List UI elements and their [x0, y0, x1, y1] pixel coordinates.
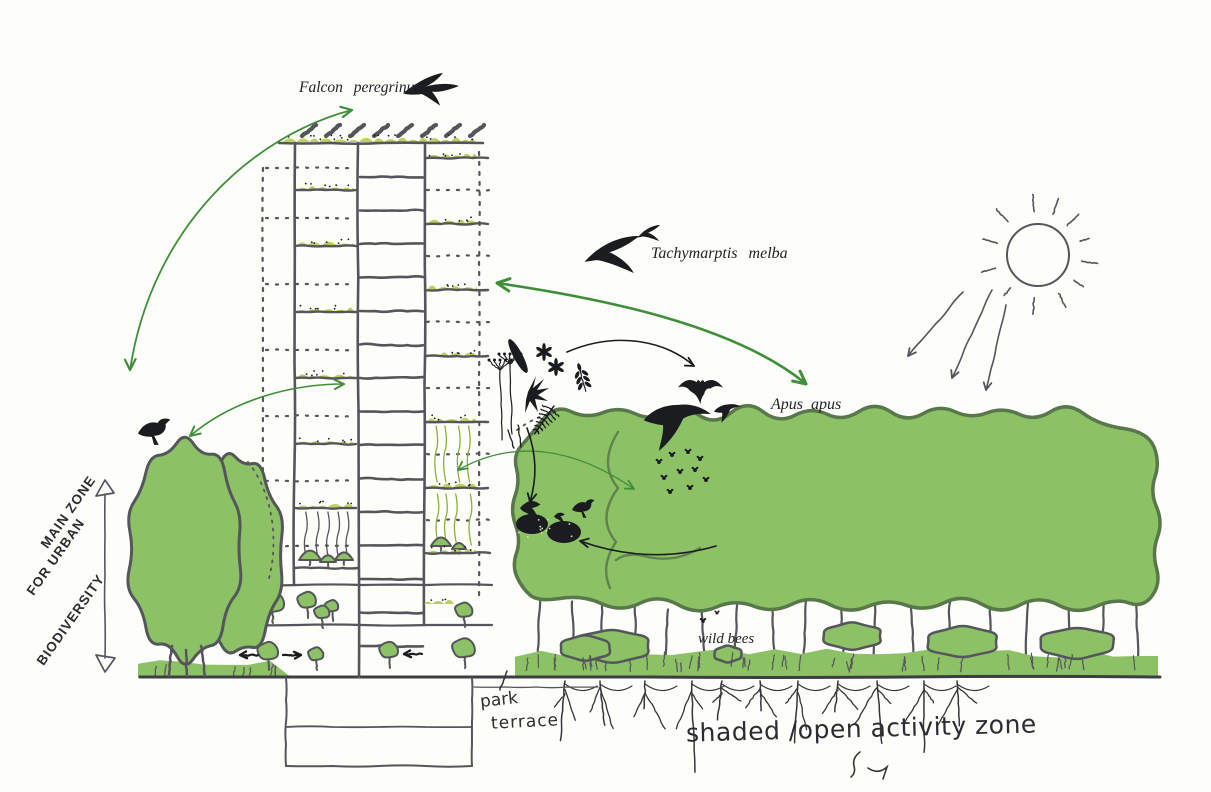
label-falcon-peregrinus: Falcon peregrinus [299, 79, 420, 97]
label-park: park [479, 688, 519, 712]
label-apus-apus: Apus apus [771, 396, 841, 414]
sunlight-arrows-icon [905, 290, 1006, 391]
biodiversity-sketch: Falcon peregrinus Tachymarptis melba Apu… [0, 0, 1211, 792]
label-terrace: terrace [491, 710, 560, 734]
perched-bird-icon [138, 418, 170, 444]
left-tree [128, 437, 283, 676]
bat-icon [678, 380, 723, 404]
sun-icon [982, 195, 1098, 315]
sketch-canvas [0, 0, 1211, 792]
ground-vegetation [138, 622, 1160, 678]
label-tachymarptis-melba: Tachymarptis melba [651, 245, 788, 263]
label-wild-bees: wild bees [698, 631, 754, 648]
tree-canopy [513, 406, 1160, 611]
